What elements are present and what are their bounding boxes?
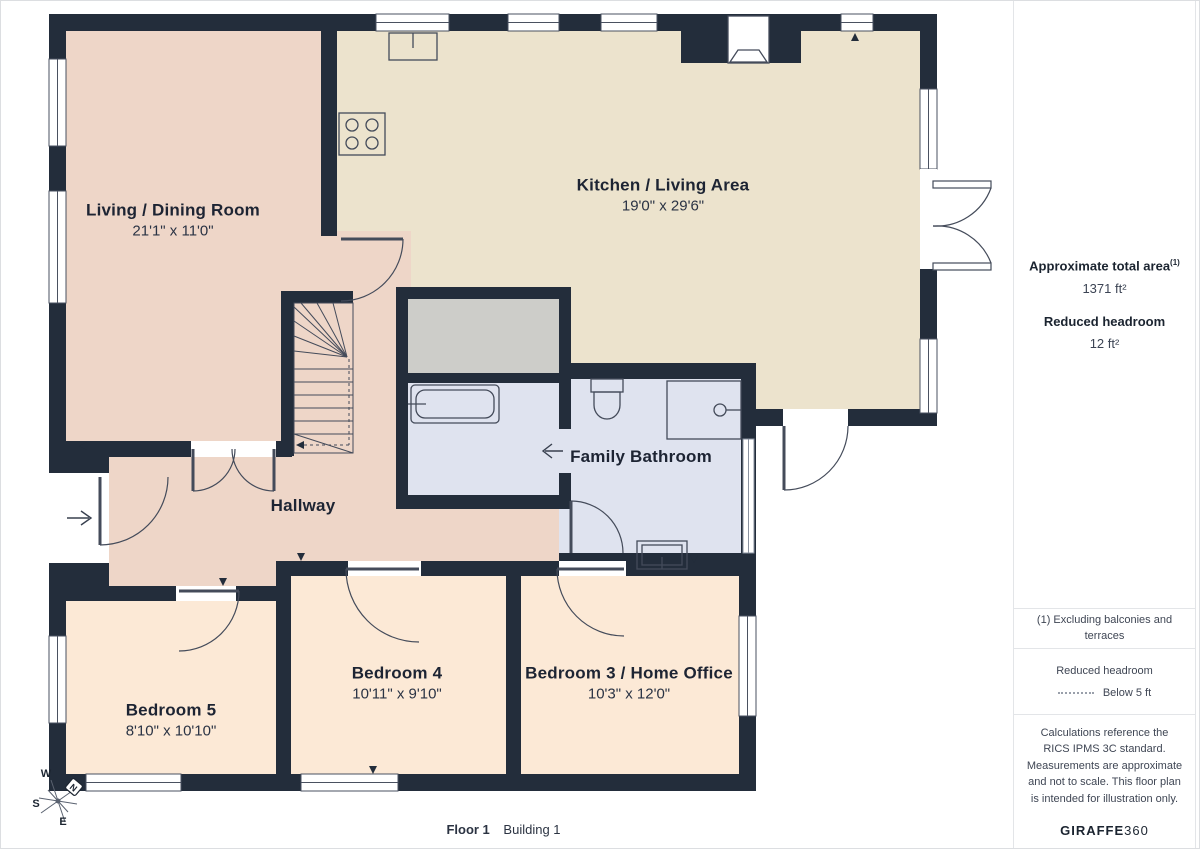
total-area-value: 1371 ft² xyxy=(1082,281,1126,296)
french-doors xyxy=(933,181,991,270)
floor-label: Floor 1 xyxy=(446,822,489,837)
legend-title: Reduced headroom xyxy=(1056,663,1153,680)
footnote-box: (1) Excluding balconies and terraces xyxy=(1014,609,1195,649)
reduced-headroom-value: 12 ft² xyxy=(1090,336,1120,351)
legend-entry: Below 5 ft xyxy=(1058,687,1151,699)
exclusions-note: (1) Excluding balconies and terraces xyxy=(1026,612,1183,645)
entrance-arrow xyxy=(67,511,91,525)
disclaimer-text: Calculations reference the RICS IPMS 3C … xyxy=(1026,725,1183,808)
footnote-marker: (1) xyxy=(1170,258,1180,267)
total-area-label: Approximate total area(1) xyxy=(1029,258,1180,273)
dotted-line-swatch xyxy=(1058,692,1094,694)
floorplan-drawing: N W S E xyxy=(1,1,1006,848)
legend-value: Below 5 ft xyxy=(1103,687,1151,699)
floorplan-page: N W S E Living / Dining Room 21'1" x 11'… xyxy=(0,0,1200,849)
building-label: Building 1 xyxy=(503,822,560,837)
giraffe360-logo: GIRAFFE360 xyxy=(1060,823,1149,838)
compass-s: S xyxy=(32,798,39,810)
fireplace-icon xyxy=(728,16,769,63)
disclaimer-box: Calculations reference the RICS IPMS 3C … xyxy=(1014,715,1195,849)
compass-w: W xyxy=(41,768,52,780)
reduced-headroom-label: Reduced headroom xyxy=(1044,314,1165,329)
floor-indicator: Floor 1 Building 1 xyxy=(1,822,1006,837)
room-fills xyxy=(66,31,920,774)
area-summary-box: Approximate total area(1) 1371 ft² Reduc… xyxy=(1014,1,1195,609)
info-sidebar: Approximate total area(1) 1371 ft² Reduc… xyxy=(1013,1,1196,848)
legend-box: Reduced headroom Below 5 ft xyxy=(1014,649,1195,715)
